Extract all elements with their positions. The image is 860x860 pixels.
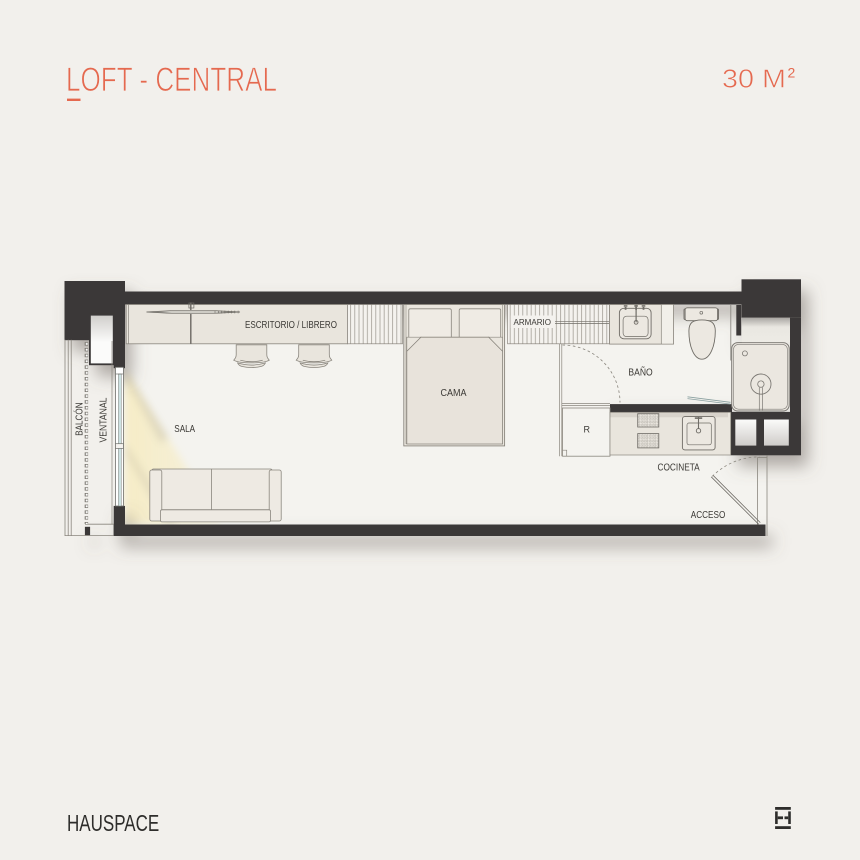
svg-text:ARMARIO: ARMARIO: [514, 317, 552, 327]
svg-text:LOFT - CENTRAL: LOFT - CENTRAL: [66, 61, 277, 99]
svg-text:R: R: [584, 425, 591, 435]
svg-text:CAMA: CAMA: [441, 388, 467, 399]
svg-text:BAÑO: BAÑO: [628, 366, 652, 379]
svg-text:2: 2: [788, 65, 796, 81]
svg-text:VENTANAL: VENTANAL: [99, 397, 110, 442]
svg-text:ESCRITORIO / LIBRERO: ESCRITORIO / LIBRERO: [245, 320, 337, 331]
svg-text:BALCÓN: BALCÓN: [72, 402, 85, 435]
svg-text:ACCESO: ACCESO: [691, 510, 726, 521]
svg-text:SALA: SALA: [174, 424, 195, 435]
svg-text:30 M: 30 M: [722, 66, 786, 94]
svg-text:COCINETA: COCINETA: [658, 463, 700, 474]
svg-text:HAUSPACE: HAUSPACE: [67, 810, 159, 836]
